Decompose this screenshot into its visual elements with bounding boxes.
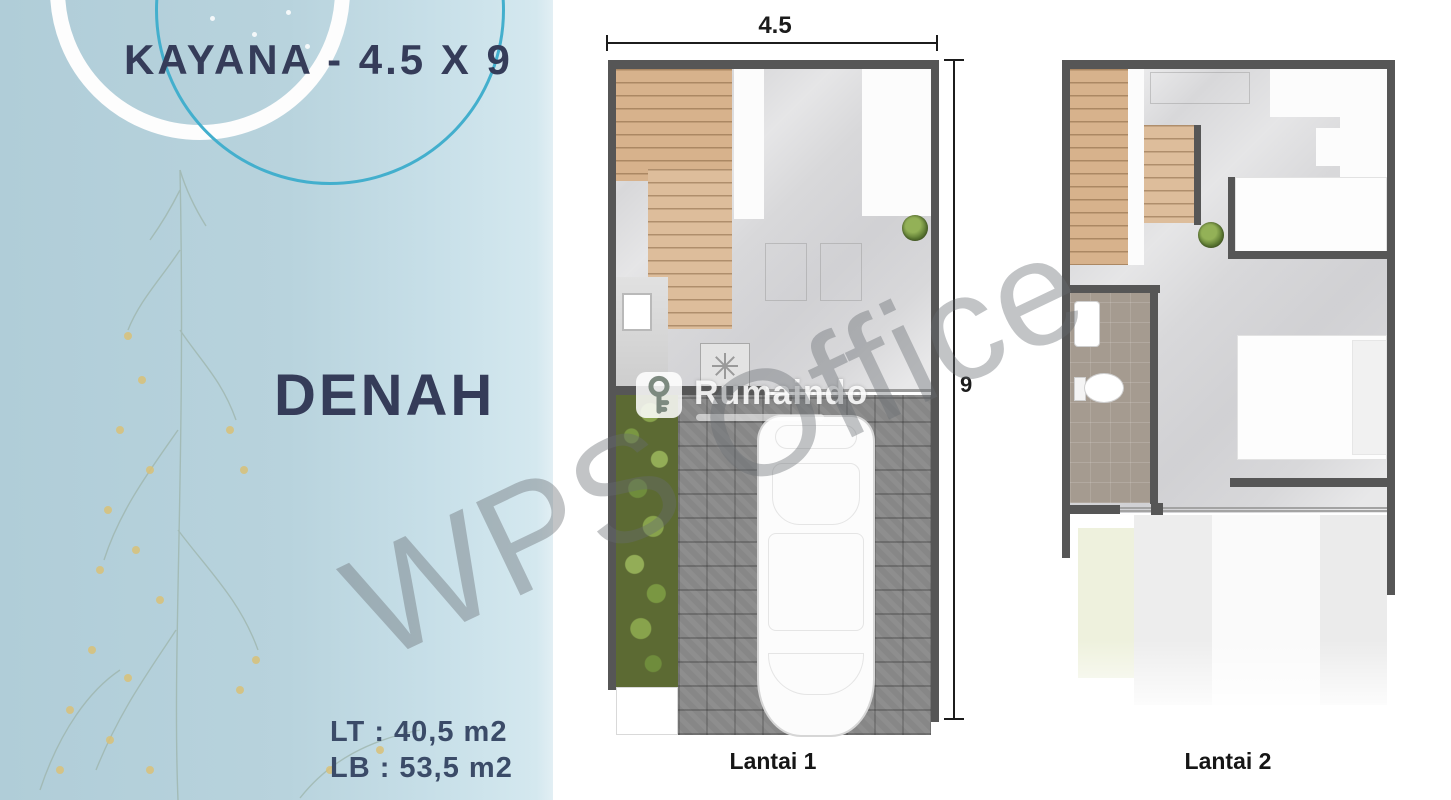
stair-wall (1194, 125, 1201, 225)
land-area-label: LT : 40,5 m2 (330, 714, 513, 750)
furniture-outline (1150, 72, 1250, 104)
project-title: KAYANA - 4.5 X 9 (124, 36, 544, 84)
stove (700, 343, 750, 389)
bedroom2-desk (1316, 128, 1387, 166)
building-area-label: LB : 53,5 m2 (330, 750, 513, 786)
sparkle-dot (210, 16, 215, 21)
width-dimension-label: 4.5 (745, 12, 805, 40)
toilet (1084, 373, 1124, 403)
bed (1235, 177, 1387, 253)
wall (612, 386, 766, 395)
stair-landing (1128, 69, 1144, 265)
wall (1062, 60, 1070, 558)
front-room (862, 69, 931, 216)
dimension-tick (944, 59, 964, 61)
wall (1228, 177, 1235, 259)
area-summary: LT : 40,5 m2 LB : 53,5 m2 (330, 714, 513, 786)
width-dimension-line (607, 42, 938, 44)
hallway (734, 69, 764, 219)
bed-side-table (1352, 340, 1387, 455)
dimension-tick (936, 35, 938, 51)
furniture-outline (820, 243, 862, 301)
wall (1387, 60, 1395, 595)
stairs (1070, 69, 1128, 265)
garden-strip (616, 395, 678, 687)
bathroom-wall (1150, 288, 1158, 504)
denah-heading: DENAH (274, 362, 495, 429)
wall (608, 60, 939, 69)
stairs-upper-flight (1144, 125, 1194, 223)
balcony-fadeout (1062, 640, 1395, 730)
car (757, 415, 875, 737)
wall-thin (766, 389, 931, 392)
plant-icon (1198, 222, 1224, 248)
plant-icon (902, 215, 928, 241)
left-info-panel: KAYANA - 4.5 X 9 DENAH LT : 40,5 m2 LB :… (0, 0, 553, 800)
floor1-label: Lantai 1 (730, 748, 817, 775)
height-dimension-label: 9 (960, 372, 972, 398)
stairs (616, 69, 732, 181)
door-post (1151, 503, 1163, 515)
wall (1066, 285, 1160, 293)
height-dimension-line (953, 60, 955, 720)
floorplan-lantai-1 (600, 55, 945, 745)
sparkle-dot (286, 10, 291, 15)
floor2-label: Lantai 2 (1185, 748, 1272, 775)
dimension-tick (944, 718, 964, 720)
dimension-tick (606, 35, 608, 51)
wall (1062, 505, 1120, 514)
wall (1062, 60, 1395, 69)
kitchen-sink (622, 293, 652, 331)
wall (608, 60, 616, 690)
wall (931, 60, 939, 722)
garden-pad (616, 687, 678, 735)
bathroom-sink (1074, 301, 1100, 347)
flower-branch-decoration (0, 130, 460, 800)
wall (1230, 478, 1387, 487)
wall (1228, 251, 1387, 259)
furniture-outline (765, 243, 807, 301)
denah-poster: KAYANA - 4.5 X 9 DENAH LT : 40,5 m2 LB :… (0, 0, 1451, 800)
